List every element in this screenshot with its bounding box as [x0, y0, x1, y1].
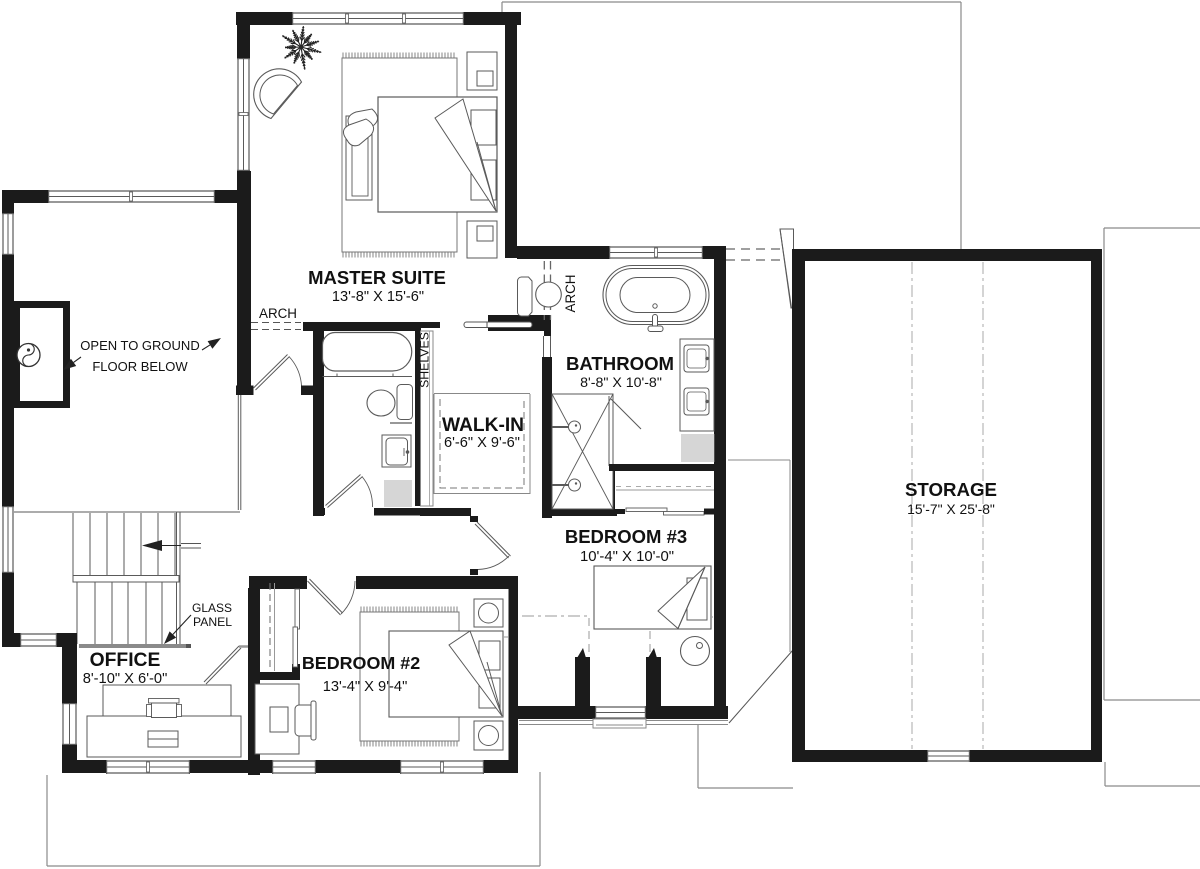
svg-text:BATHROOM: BATHROOM	[566, 353, 674, 374]
svg-text:8'-8" X 10'-8": 8'-8" X 10'-8"	[580, 375, 662, 391]
svg-text:GLASS: GLASS	[192, 601, 232, 615]
svg-text:15'-7" X 25'-8": 15'-7" X 25'-8"	[907, 501, 995, 517]
svg-text:8'-10" X 6'-0": 8'-10" X 6'-0"	[83, 671, 168, 687]
svg-text:WALK-IN: WALK-IN	[442, 415, 524, 436]
svg-text:13'-4" X 9'-4": 13'-4" X 9'-4"	[323, 679, 408, 695]
svg-text:ARCH: ARCH	[563, 275, 578, 313]
svg-text:OFFICE: OFFICE	[90, 650, 161, 671]
svg-text:MASTER SUITE: MASTER SUITE	[308, 267, 446, 288]
svg-text:13'-8" X 15'-6": 13'-8" X 15'-6"	[332, 289, 424, 305]
svg-text:PANEL: PANEL	[193, 615, 232, 629]
svg-text:ARCH: ARCH	[259, 306, 297, 321]
svg-text:STORAGE: STORAGE	[905, 479, 997, 500]
svg-text:FLOOR BELOW: FLOOR BELOW	[92, 359, 188, 374]
svg-text:BEDROOM #3: BEDROOM #3	[565, 526, 687, 547]
svg-text:BEDROOM #2: BEDROOM #2	[302, 653, 420, 673]
svg-text:OPEN TO GROUND: OPEN TO GROUND	[80, 338, 199, 353]
svg-text:SHELVES: SHELVES	[418, 332, 432, 388]
svg-text:6'-6" X 9'-6": 6'-6" X 9'-6"	[444, 435, 520, 451]
svg-text:10'-4" X 10'-0": 10'-4" X 10'-0"	[580, 549, 674, 565]
